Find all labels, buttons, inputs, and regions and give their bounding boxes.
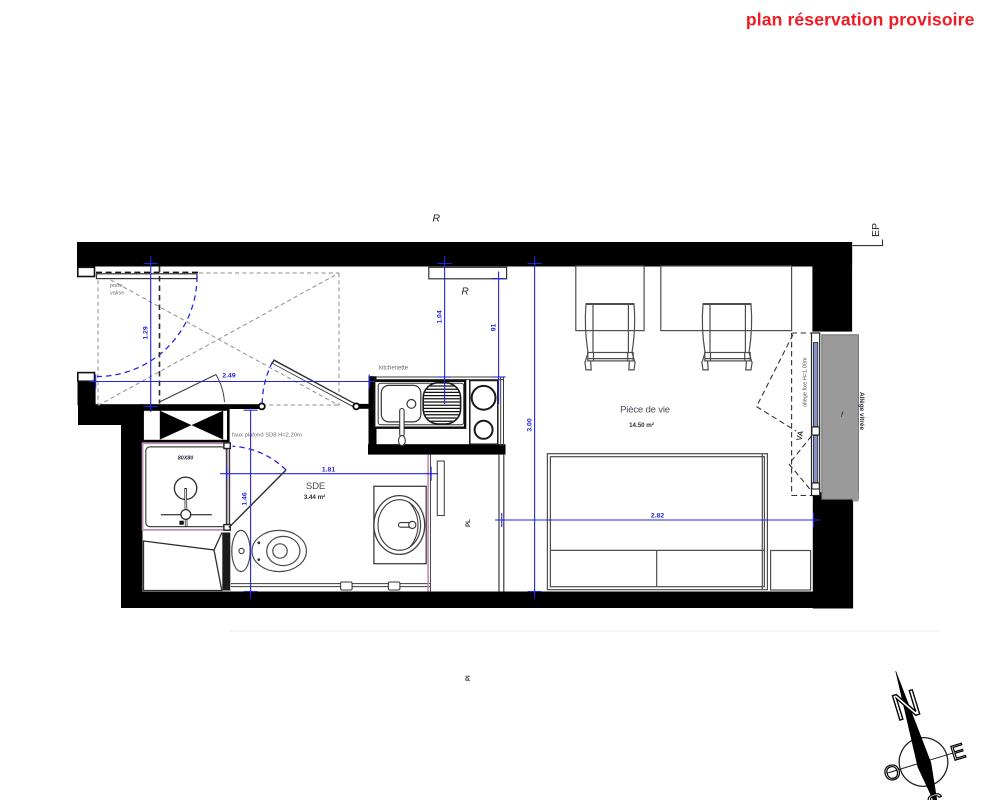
svg-text:1.04: 1.04 bbox=[436, 310, 443, 323]
svg-text:S: S bbox=[923, 786, 948, 800]
svg-text:allège fixe H=1.00m: allège fixe H=1.00m bbox=[803, 357, 809, 407]
svg-text:80X80: 80X80 bbox=[178, 455, 194, 461]
svg-text:faux plafond SD8 H=2.20m: faux plafond SD8 H=2.20m bbox=[232, 433, 302, 439]
svg-text:O: O bbox=[881, 760, 903, 787]
svg-text:2.49: 2.49 bbox=[222, 373, 235, 380]
svg-text:14.50 m²: 14.50 m² bbox=[629, 422, 654, 429]
svg-text:EP: EP bbox=[870, 223, 882, 237]
svg-text:PL: PL bbox=[466, 519, 472, 527]
svg-text:Pl: Pl bbox=[466, 675, 472, 681]
svg-text:3.00: 3.00 bbox=[526, 418, 533, 431]
svg-text:R: R bbox=[462, 287, 469, 298]
svg-text:SDE: SDE bbox=[306, 481, 325, 492]
svg-text:porte: porte bbox=[110, 283, 123, 289]
svg-text:plan réservation provisoire: plan réservation provisoire bbox=[746, 10, 975, 30]
svg-text:91: 91 bbox=[490, 324, 497, 332]
svg-text:1.29: 1.29 bbox=[143, 326, 150, 339]
svg-text:N: N bbox=[887, 682, 925, 729]
svg-text:valise: valise bbox=[110, 291, 124, 297]
svg-text:1.81: 1.81 bbox=[322, 467, 335, 474]
svg-text:1.46: 1.46 bbox=[241, 492, 248, 505]
svg-text:2.82: 2.82 bbox=[651, 513, 664, 520]
svg-text:Pièce de vie: Pièce de vie bbox=[620, 405, 670, 416]
svg-text:kitchenette: kitchenette bbox=[379, 366, 409, 372]
svg-text:3.44 m²: 3.44 m² bbox=[304, 494, 325, 501]
svg-text:E: E bbox=[948, 739, 968, 765]
svg-text:R: R bbox=[433, 213, 441, 225]
svg-text:VA: VA bbox=[795, 429, 806, 441]
svg-text:Allège vitrée: Allège vitrée bbox=[858, 392, 865, 430]
